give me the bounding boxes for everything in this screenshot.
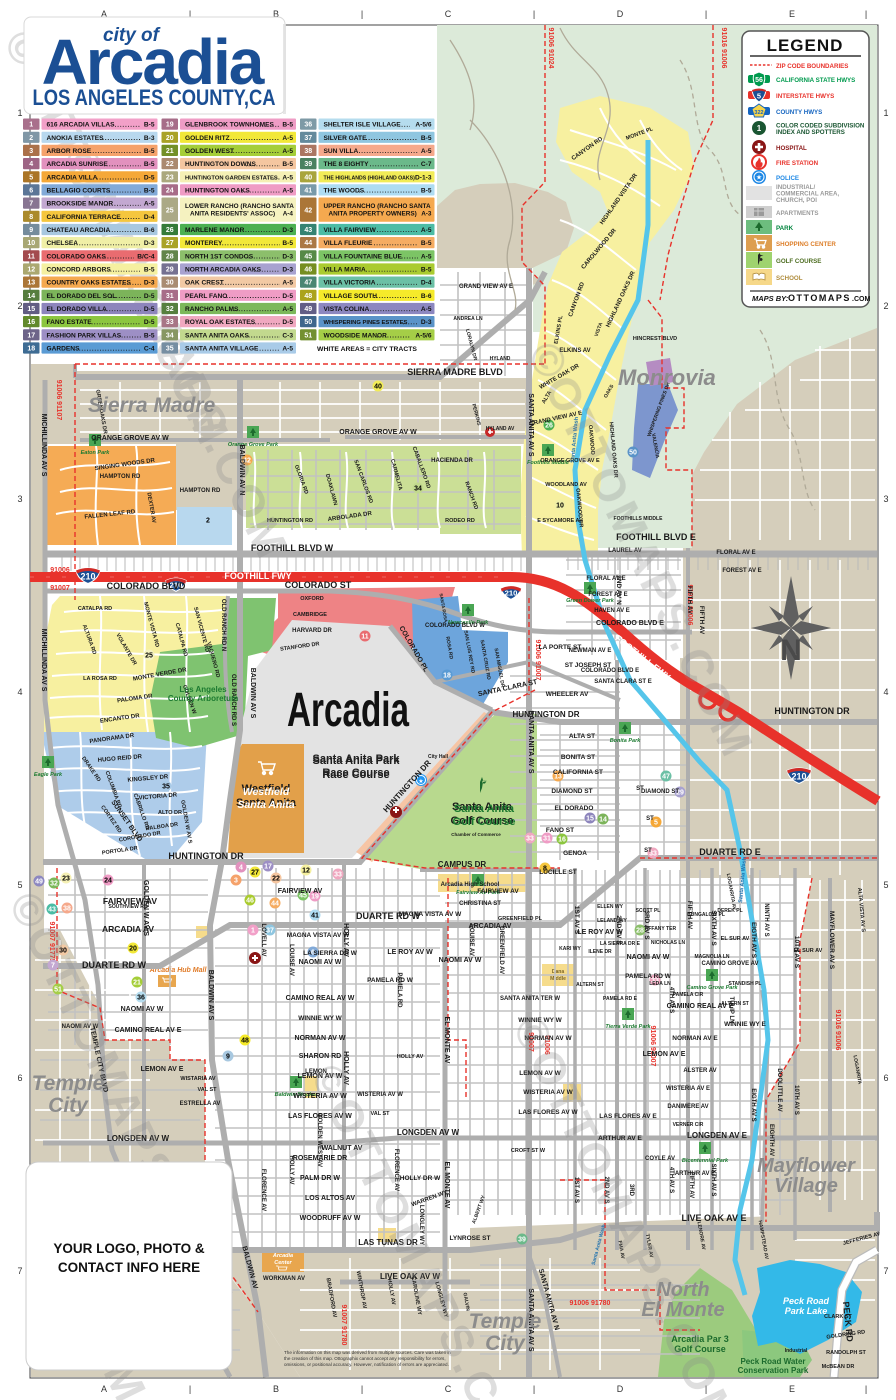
svg-text:E: E — [789, 1384, 795, 1394]
svg-text:47: 47 — [662, 774, 670, 781]
svg-text:50: 50 — [304, 319, 312, 326]
svg-text:3: 3 — [17, 494, 22, 504]
svg-text:Peck Road Water: Peck Road Water — [740, 1357, 805, 1366]
svg-text:omissions, or positional accur: omissions, or positional accuracy. Howev… — [284, 1362, 449, 1367]
svg-text:DIAMOND ST: DIAMOND ST — [551, 788, 592, 795]
svg-text:A-3: A-3 — [421, 211, 432, 218]
svg-text:MICHILLINDA AV S: MICHILLINDA AV S — [40, 629, 47, 692]
svg-text:10: 10 — [556, 503, 564, 510]
svg-text:COLORADO OAKS: COLORADO OAKS — [47, 253, 107, 260]
svg-text:26: 26 — [166, 227, 174, 234]
svg-text:.COM: .COM — [852, 296, 870, 303]
svg-text:616 ARCADIA VILLAS: 616 ARCADIA VILLAS — [47, 122, 116, 129]
svg-text:6: 6 — [29, 188, 33, 195]
svg-text:CONTACT INFO HERE: CONTACT INFO HERE — [58, 1260, 200, 1275]
svg-text:27: 27 — [166, 240, 174, 247]
svg-text:SANTA ANITA TER W: SANTA ANITA TER W — [500, 996, 560, 1002]
svg-text:MARLENE MANOR: MARLENE MANOR — [185, 227, 245, 234]
svg-text:ANOKIA ESTATES: ANOKIA ESTATES — [47, 135, 105, 142]
svg-text:LEMON AV E: LEMON AV E — [643, 1051, 686, 1058]
svg-text:ILENE DR: ILENE DR — [588, 949, 612, 955]
svg-text:LONGDEN AV E: LONGDEN AV E — [687, 1131, 748, 1140]
svg-text:★: ★ — [756, 174, 762, 182]
svg-text:37: 37 — [304, 135, 312, 142]
svg-text:|: | — [865, 1384, 867, 1394]
svg-text:Monrovia: Monrovia — [618, 365, 716, 390]
svg-text:B-5: B-5 — [282, 240, 293, 247]
svg-text:CAMPUS DR: CAMPUS DR — [438, 860, 487, 869]
svg-text:1: 1 — [883, 108, 888, 118]
svg-text:RANDOLPH ST: RANDOLPH ST — [826, 1350, 866, 1356]
svg-text:LAS FLORES AV E: LAS FLORES AV E — [599, 1113, 657, 1120]
svg-text:ROYAL OAK ESTATES: ROYAL OAK ESTATES — [185, 319, 256, 326]
svg-text:GLENBROOK TOWNHOMES: GLENBROOK TOWNHOMES — [185, 122, 274, 129]
svg-text:41: 41 — [311, 913, 319, 920]
svg-text:TIFFANY TER: TIFFANY TER — [644, 926, 677, 932]
svg-text:44: 44 — [304, 240, 312, 247]
svg-text:VILLA FAIRVIEW: VILLA FAIRVIEW — [324, 227, 377, 234]
svg-text:NAOMI AV W: NAOMI AV W — [299, 959, 342, 966]
svg-text:B-5: B-5 — [421, 240, 432, 247]
svg-text:|: | — [533, 9, 535, 19]
svg-text:11: 11 — [28, 253, 36, 260]
svg-text:EL SUR AV: EL SUR AV — [794, 948, 823, 954]
svg-text:CROFT ST W: CROFT ST W — [511, 1148, 546, 1154]
svg-text:|: | — [533, 1384, 535, 1394]
svg-text:ALTERN ST: ALTERN ST — [576, 982, 604, 988]
svg-text:91006 91780: 91006 91780 — [570, 1300, 611, 1307]
svg-text:SCHOOL: SCHOOL — [776, 275, 803, 282]
svg-text:CAMINO REAL AV E: CAMINO REAL AV E — [115, 1027, 182, 1034]
svg-text:A-4: A-4 — [283, 211, 294, 218]
svg-text:SIXTH AV S: SIXTH AV S — [710, 1164, 716, 1197]
svg-text:1: 1 — [17, 108, 22, 118]
svg-text:ST: ST — [644, 848, 652, 854]
svg-text:B-5: B-5 — [421, 135, 432, 142]
svg-text:B-3: B-3 — [144, 135, 155, 142]
svg-text:15: 15 — [586, 816, 594, 823]
svg-text:VERNER CIR: VERNER CIR — [673, 1122, 704, 1128]
svg-text:A-5/6: A-5/6 — [415, 122, 431, 129]
svg-text:28: 28 — [166, 253, 174, 260]
svg-text:WORKMAN AV: WORKMAN AV — [263, 1276, 305, 1282]
svg-text:WHITE AREAS = CITY TRACTS: WHITE AREAS = CITY TRACTS — [317, 346, 417, 353]
svg-text:B-6: B-6 — [144, 227, 155, 234]
svg-text:7: 7 — [883, 1266, 888, 1276]
svg-text:VILLA FLEURIE: VILLA FLEURIE — [324, 240, 373, 247]
svg-text:DOOLITTLE AV: DOOLITTLE AV — [776, 1068, 782, 1111]
svg-text:ALTA ST: ALTA ST — [569, 733, 595, 740]
svg-text:the creation of this map. Otto: the creation of this map. Ottographix ca… — [284, 1356, 446, 1361]
svg-text:KARI WY: KARI WY — [559, 946, 581, 952]
svg-text:C-3: C-3 — [282, 332, 293, 339]
svg-text:8: 8 — [29, 214, 33, 221]
svg-text:ANITA PROPERTY OWNERS): ANITA PROPERTY OWNERS) — [329, 211, 417, 218]
svg-text:WOODRUFF AV W: WOODRUFF AV W — [300, 1215, 361, 1222]
svg-text:VAL ST: VAL ST — [197, 1087, 217, 1093]
svg-text:HUNTINGTON DR: HUNTINGTON DR — [513, 710, 580, 719]
svg-text:1: 1 — [251, 928, 255, 935]
svg-text:Green Dower Park: Green Dower Park — [566, 598, 615, 604]
svg-text:COLORADO BLVD W: COLORADO BLVD W — [425, 623, 485, 629]
svg-text:WISTERIA AV E: WISTERIA AV E — [666, 1086, 710, 1092]
svg-text:HUNTINGTON GARDEN ESTATES: HUNTINGTON GARDEN ESTATES — [185, 175, 278, 181]
svg-text:ARCADIA SUNRISE: ARCADIA SUNRISE — [47, 161, 109, 168]
svg-text:FOREST AV E: FOREST AV E — [722, 568, 761, 574]
svg-text:ARBOR ROSE: ARBOR ROSE — [47, 148, 92, 155]
svg-text:36: 36 — [137, 995, 145, 1002]
svg-text:ANITA RESIDENTS' ASSOC): ANITA RESIDENTS' ASSOC) — [190, 211, 275, 218]
svg-text:91006 91107: 91006 91107 — [55, 380, 62, 421]
svg-text:14: 14 — [27, 293, 35, 300]
svg-text:C-4: C-4 — [144, 346, 155, 353]
svg-text:50: 50 — [629, 450, 637, 457]
svg-text:NAOMI AV W: NAOMI AV W — [121, 1006, 164, 1013]
svg-text:COUNTRY OAKS ESTATES: COUNTRY OAKS ESTATES — [47, 280, 132, 287]
svg-text:FOOTHILL FWY: FOOTHILL FWY — [224, 571, 291, 581]
svg-text:33: 33 — [166, 319, 174, 326]
svg-text:20: 20 — [129, 946, 137, 953]
svg-text:Santa Anita: Santa Anita — [454, 803, 515, 815]
svg-text:GOLDEN WEST: GOLDEN WEST — [185, 148, 234, 155]
svg-text:210: 210 — [80, 572, 95, 582]
svg-text:22: 22 — [272, 876, 280, 883]
svg-text:3: 3 — [883, 494, 888, 504]
svg-text:6: 6 — [17, 1073, 22, 1083]
svg-text:MICHILLINDA AV S: MICHILLINDA AV S — [40, 414, 47, 477]
svg-text:1: 1 — [29, 122, 33, 129]
svg-text:WHEELER AV: WHEELER AV — [546, 691, 589, 698]
svg-text:City Hall: City Hall — [428, 754, 449, 760]
svg-text:HOLLY AV: HOLLY AV — [397, 1054, 424, 1060]
svg-text:23: 23 — [166, 174, 174, 181]
svg-text:91007 91780: 91007 91780 — [340, 1305, 347, 1346]
svg-text:32: 32 — [50, 881, 58, 888]
svg-text:91006: 91006 — [50, 567, 70, 574]
svg-text:SHOPPING CENTER: SHOPPING CENTER — [776, 241, 836, 248]
svg-text:24: 24 — [104, 878, 112, 885]
svg-text:SUN VILLA: SUN VILLA — [324, 148, 359, 155]
svg-text:4TH AV S: 4TH AV S — [668, 987, 674, 1013]
svg-text:12: 12 — [27, 267, 35, 274]
svg-text:BROOKSIDE MANOR: BROOKSIDE MANOR — [47, 201, 114, 208]
svg-text:D-5: D-5 — [282, 319, 293, 326]
svg-text:BUNGALOW PL: BUNGALOW PL — [687, 912, 725, 918]
svg-text:PALM DR W: PALM DR W — [300, 1175, 340, 1182]
svg-text:OLD RANCH RD N: OLD RANCH RD N — [220, 599, 226, 651]
svg-text:PAMELA RD W: PAMELA RD W — [625, 973, 672, 980]
svg-text:Chamber of Commerce: Chamber of Commerce — [451, 832, 501, 837]
svg-text:VILLA FOUNTAINE BLUE: VILLA FOUNTAINE BLUE — [324, 253, 403, 260]
svg-text:Santa Anita Park: Santa Anita Park — [312, 753, 400, 765]
svg-text:LELAND WY: LELAND WY — [597, 918, 627, 924]
svg-text:A-5/6: A-5/6 — [415, 332, 431, 339]
svg-text:3: 3 — [29, 148, 33, 155]
svg-text:LA PORTE ST: LA PORTE ST — [539, 644, 582, 651]
svg-text:VILLA MARIA: VILLA MARIA — [324, 267, 366, 274]
svg-text:NORMAN AV W: NORMAN AV W — [295, 1035, 346, 1042]
svg-text:FLORAL AV E: FLORAL AV E — [586, 576, 625, 582]
svg-text:48: 48 — [241, 1038, 249, 1045]
svg-text:48: 48 — [304, 293, 312, 300]
svg-text:GREENFIELD AV: GREENFIELD AV — [498, 926, 504, 974]
svg-text:|: | — [361, 1384, 363, 1394]
svg-text:91007: 91007 — [50, 585, 70, 592]
svg-text:D-5: D-5 — [144, 293, 155, 300]
svg-text:FIRE STATION: FIRE STATION — [776, 160, 819, 167]
svg-text:D-4: D-4 — [421, 280, 432, 287]
svg-text:LOS ALTOS AV: LOS ALTOS AV — [305, 1195, 355, 1202]
svg-text:A-5: A-5 — [144, 201, 155, 208]
svg-text:1: 1 — [757, 124, 762, 133]
svg-text:COUNTY HWYS: COUNTY HWYS — [776, 109, 822, 116]
svg-text:Golf Course: Golf Course — [453, 816, 516, 828]
svg-text:A-5: A-5 — [282, 306, 293, 313]
svg-text:D-5: D-5 — [144, 174, 155, 181]
svg-text:NICHOLAS LN: NICHOLAS LN — [651, 940, 686, 946]
svg-text:Mayflower: Mayflower — [757, 1155, 856, 1177]
svg-text:31: 31 — [543, 836, 551, 843]
svg-text:ORANGE GROVE AV W: ORANGE GROVE AV W — [339, 429, 417, 436]
svg-text:SHELTER ISLE VILLAGE: SHELTER ISLE VILLAGE — [324, 122, 402, 129]
svg-text:EIGHTH AV: EIGHTH AV — [768, 1124, 774, 1156]
svg-text:D: D — [617, 1384, 624, 1394]
svg-text:Tierra Verde Park: Tierra Verde Park — [605, 1024, 651, 1030]
svg-text:B-5: B-5 — [144, 122, 155, 129]
svg-text:FAIRVIEW AV: FAIRVIEW AV — [278, 888, 323, 895]
svg-text:ARCADIA AV: ARCADIA AV — [102, 924, 154, 934]
svg-text:NORTH 1ST CONDOS: NORTH 1ST CONDOS — [185, 253, 254, 260]
svg-text:ST JOSEPH ST: ST JOSEPH ST — [565, 662, 612, 669]
svg-text:POLICE: POLICE — [776, 175, 799, 182]
svg-text:51: 51 — [304, 332, 312, 339]
svg-text:LOUISE AV: LOUISE AV — [288, 944, 294, 976]
svg-text:WISTARIA AV: WISTARIA AV — [180, 1076, 215, 1082]
svg-text:17: 17 — [27, 332, 35, 339]
svg-text:30: 30 — [166, 280, 174, 287]
svg-text:39: 39 — [304, 161, 312, 168]
svg-text:APARTMENTS: APARTMENTS — [776, 210, 819, 217]
svg-text:CHURCH, POI: CHURCH, POI — [776, 197, 817, 204]
svg-text:15: 15 — [27, 306, 35, 313]
svg-text:Bicentennial Park: Bicentennial Park — [682, 1158, 729, 1164]
svg-text:BONITA ST: BONITA ST — [561, 754, 595, 761]
svg-text:EL MONTE AV: EL MONTE AV — [443, 1017, 450, 1064]
svg-text:INTERSTATE HWYS: INTERSTATE HWYS — [776, 93, 834, 100]
svg-text:MAYFLOWER AV S: MAYFLOWER AV S — [828, 911, 835, 970]
svg-text:Peck Road: Peck Road — [783, 1296, 830, 1306]
svg-text:B/C-4: B/C-4 — [137, 253, 155, 260]
svg-text:29: 29 — [166, 267, 174, 274]
svg-text:OXFORD: OXFORD — [300, 596, 324, 602]
svg-text:ARCADIA AV: ARCADIA AV — [469, 923, 512, 930]
svg-text:D: D — [617, 9, 624, 19]
svg-text:LEGEND: LEGEND — [767, 36, 844, 55]
svg-text:HAMPTON RD: HAMPTON RD — [100, 474, 141, 480]
svg-text:PAMELA CIR: PAMELA CIR — [673, 992, 704, 998]
svg-text:4TH AV S: 4TH AV S — [668, 1167, 674, 1193]
svg-text:43: 43 — [304, 227, 312, 234]
svg-text:27: 27 — [251, 870, 259, 877]
svg-text:2: 2 — [29, 135, 33, 142]
svg-text:FANO ESTATE: FANO ESTATE — [47, 319, 93, 326]
svg-text:EL SUR AV: EL SUR AV — [721, 936, 750, 942]
svg-text:WINNIE WY W: WINNIE WY W — [298, 1015, 342, 1022]
svg-text:ORANGE GROVE AV W: ORANGE GROVE AV W — [91, 435, 169, 442]
svg-text:B: B — [273, 1384, 279, 1394]
svg-text:EIGTH AV S: EIGTH AV S — [750, 1088, 756, 1121]
svg-text:HUNTINGTON DOWNS: HUNTINGTON DOWNS — [185, 161, 257, 168]
svg-text:SHARON RD: SHARON RD — [299, 1053, 341, 1060]
svg-text:33: 33 — [334, 872, 342, 879]
svg-text:LOUISE AV: LOUISE AV — [468, 924, 474, 956]
svg-text:CAMINO GROVE AV: CAMINO GROVE AV — [701, 961, 758, 967]
svg-text:OTTOMAPS: OTTOMAPS — [788, 293, 851, 303]
svg-text:A-5: A-5 — [421, 253, 432, 260]
svg-text:46: 46 — [246, 898, 254, 905]
svg-text:MAGNOLIA LN: MAGNOLIA LN — [694, 954, 729, 960]
svg-text:EL MONTE AV: EL MONTE AV — [443, 1162, 450, 1209]
svg-text:ALTO DR: ALTO DR — [158, 810, 182, 816]
svg-text:EIGTH AV S: EIGTH AV S — [750, 922, 757, 959]
svg-text:12: 12 — [302, 868, 310, 875]
svg-text:ALSTER AV: ALSTER AV — [683, 1068, 716, 1074]
svg-text:Santa Anita: Santa Anita — [237, 799, 295, 811]
svg-text:THE 8 EIGHTY: THE 8 EIGHTY — [324, 161, 370, 168]
svg-text:LEDA LN: LEDA LN — [649, 981, 671, 987]
svg-text:6: 6 — [883, 1073, 888, 1083]
svg-text:INDEX AND SPOTTERS: INDEX AND SPOTTERS — [776, 129, 845, 136]
svg-text:MAPS BY:: MAPS BY: — [752, 294, 789, 303]
svg-text:Industrial: Industrial — [785, 1348, 808, 1354]
svg-text:9: 9 — [226, 1054, 230, 1061]
svg-text:A-5: A-5 — [421, 148, 432, 155]
svg-text:NAOMI AV W: NAOMI AV W — [439, 957, 482, 964]
svg-text:FANO ST: FANO ST — [546, 827, 574, 834]
svg-text:B-5: B-5 — [421, 188, 432, 195]
svg-text:THE HIGHLANDS (HIGHLAND OAKS): THE HIGHLANDS (HIGHLAND OAKS) — [324, 175, 416, 181]
svg-text:LA SIERRA DR W: LA SIERRA DR W — [303, 950, 358, 957]
svg-text:WHISPERING PINES ESTATES: WHISPERING PINES ESTATES — [324, 320, 408, 326]
svg-text:91016 91006: 91016 91006 — [834, 1010, 841, 1051]
svg-text:CONCORD ARBORS: CONCORD ARBORS — [47, 267, 112, 274]
svg-text:MAGNA VISTA AV W: MAGNA VISTA AV W — [287, 932, 350, 939]
svg-text:18: 18 — [443, 673, 451, 680]
svg-text:34: 34 — [166, 332, 174, 339]
svg-text:LYNROSE ST: LYNROSE ST — [450, 1235, 491, 1242]
svg-text:C: C — [445, 1384, 452, 1394]
svg-text:Center: Center — [274, 1260, 292, 1266]
svg-text:PAMELA RD: PAMELA RD — [396, 973, 402, 1009]
svg-text:N: N — [780, 634, 802, 667]
svg-text:56: 56 — [755, 77, 763, 84]
svg-text:CALIFORNIA STATE HWYS: CALIFORNIA STATE HWYS — [776, 77, 855, 84]
svg-text:35: 35 — [166, 346, 174, 353]
svg-text:E SYCAMORE AV: E SYCAMORE AV — [537, 518, 583, 524]
svg-text:FOREST AV E: FOREST AV E — [588, 592, 627, 598]
svg-text:46: 46 — [304, 267, 312, 274]
svg-text:HOLLY AV: HOLLY AV — [288, 1155, 294, 1184]
svg-text:25: 25 — [145, 653, 153, 660]
svg-text:Middle: Middle — [550, 976, 566, 982]
svg-text:4: 4 — [883, 687, 888, 697]
svg-text:NORMAN AV E: NORMAN AV E — [672, 1035, 718, 1042]
svg-text:EL DORADO: EL DORADO — [555, 805, 594, 812]
svg-text:Bonita Park: Bonita Park — [610, 738, 642, 744]
svg-text:FAIRVIEW AV: FAIRVIEW AV — [477, 888, 519, 895]
svg-text:YOUR LOGO, PHOTO &: YOUR LOGO, PHOTO & — [53, 1241, 205, 1256]
svg-text:City: City — [48, 1094, 89, 1117]
svg-text:2: 2 — [883, 301, 888, 311]
svg-text:PAMELA RD W: PAMELA RD W — [367, 977, 414, 984]
svg-text:COYLE AV: COYLE AV — [645, 1156, 675, 1162]
svg-text:B-5: B-5 — [144, 267, 155, 274]
svg-text:ARCADIA VILLA: ARCADIA VILLA — [47, 174, 98, 181]
svg-text:ZIP CODE BOUNDARIES: ZIP CODE BOUNDARIES — [776, 63, 848, 70]
svg-text:D-3: D-3 — [421, 319, 432, 326]
svg-text:Los Angeles: Los Angeles — [179, 685, 227, 694]
svg-text:HUNTINGTON DR: HUNTINGTON DR — [168, 851, 244, 861]
svg-text:C-7: C-7 — [421, 161, 432, 168]
svg-text:DUARTE RD W: DUARTE RD W — [82, 960, 146, 970]
svg-text:35: 35 — [162, 784, 170, 791]
svg-text:EL DORADO VILLA: EL DORADO VILLA — [47, 306, 108, 313]
svg-text:MONTEREY: MONTEREY — [185, 240, 223, 247]
svg-text:CAMINO REAL AV W: CAMINO REAL AV W — [286, 995, 355, 1002]
svg-text:FASHION PARK VILLAS: FASHION PARK VILLAS — [47, 332, 122, 339]
svg-text:FIFTH AV: FIFTH AV — [688, 1172, 694, 1198]
svg-text:2: 2 — [17, 301, 22, 311]
svg-text:23: 23 — [62, 876, 70, 883]
svg-text:5: 5 — [17, 880, 22, 890]
svg-text:RANCHO PALMS: RANCHO PALMS — [185, 306, 239, 313]
svg-text:EL DORADO DEL SOL: EL DORADO DEL SOL — [47, 293, 117, 300]
svg-text:36: 36 — [304, 122, 312, 129]
svg-text:24: 24 — [166, 188, 174, 195]
svg-text:LE ROY AV W: LE ROY AV W — [387, 949, 433, 956]
svg-text:210: 210 — [505, 588, 518, 597]
svg-text:VILLAGE SOUTH: VILLAGE SOUTH — [324, 293, 378, 300]
svg-text:A-5: A-5 — [282, 188, 293, 195]
svg-text:CHELSEA: CHELSEA — [47, 240, 79, 247]
svg-text:Dana: Dana — [552, 969, 564, 975]
svg-text:LONGDEN AV W: LONGDEN AV W — [397, 1128, 460, 1137]
svg-text:HYLAND AV: HYLAND AV — [486, 426, 515, 432]
svg-text:5: 5 — [883, 880, 888, 890]
svg-text:HUNTINGTON OAKS: HUNTINGTON OAKS — [185, 188, 250, 195]
svg-text:3: 3 — [234, 878, 238, 885]
svg-text:91006 91024: 91006 91024 — [547, 28, 554, 69]
svg-text:20: 20 — [166, 135, 174, 142]
svg-text:21: 21 — [166, 148, 174, 155]
svg-text:UPPER RANCHO (RANCHO SANTA: UPPER RANCHO (RANCHO SANTA — [324, 203, 431, 210]
svg-text:|: | — [705, 9, 707, 19]
svg-text:D-3: D-3 — [144, 280, 155, 287]
svg-text:CHATEAU ARCADIA: CHATEAU ARCADIA — [47, 227, 111, 234]
svg-text:39: 39 — [518, 1237, 526, 1244]
svg-text:D-3: D-3 — [144, 240, 155, 247]
svg-text:NAOMI AV W: NAOMI AV W — [627, 954, 670, 961]
svg-text:LOWER RANCHO (RANCHO SANTA: LOWER RANCHO (RANCHO SANTA — [185, 203, 294, 210]
svg-text:C: C — [445, 9, 452, 19]
svg-text:LUCILLE ST: LUCILLE ST — [539, 869, 577, 876]
svg-text:COLORADO ST: COLORADO ST — [285, 580, 352, 590]
svg-text:Westfield: Westfield — [243, 786, 290, 798]
svg-text:D-5: D-5 — [144, 306, 155, 313]
svg-text:BALDWIN AV S: BALDWIN AV S — [249, 668, 256, 719]
svg-text:CAMBRIDGE: CAMBRIDGE — [293, 612, 327, 618]
svg-text:FLORENCE AV: FLORENCE AV — [260, 1169, 266, 1211]
